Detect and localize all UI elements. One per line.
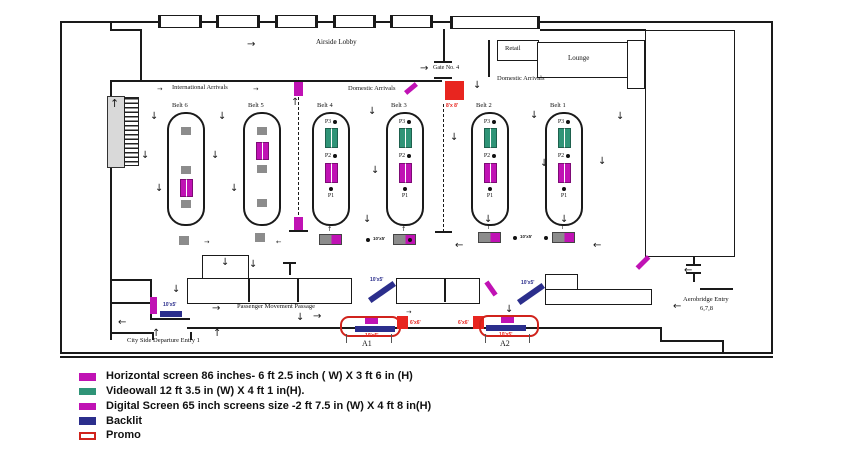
pillar-screen-pair	[319, 234, 342, 245]
gate-label: Gate No. 4	[433, 65, 459, 71]
lobby-door	[390, 15, 433, 28]
arrow-right-icon	[247, 40, 255, 50]
belt-marker	[181, 166, 191, 174]
divider-end-bar	[435, 231, 452, 233]
belt-5-label: Belt 5	[248, 103, 264, 110]
arrow-down-icon	[249, 260, 257, 270]
divider-end-bar	[289, 230, 308, 232]
arrow-down-icon	[371, 166, 379, 176]
arrow-down-icon	[230, 184, 238, 194]
wall	[540, 29, 646, 31]
vertical-screen	[150, 297, 157, 314]
wall	[110, 279, 152, 281]
pillar-dot	[513, 236, 517, 240]
wall	[488, 40, 490, 77]
belt-2-label: Belt 2	[476, 103, 492, 110]
pillar-label: P3	[325, 119, 331, 125]
size-label-10x5: 10'x5'	[521, 280, 535, 286]
pillar-dot	[407, 154, 411, 158]
arrow-down-icon	[450, 133, 458, 143]
size-label-6x6: 6'x6'	[458, 320, 469, 326]
wall	[660, 340, 724, 342]
arrow-right-icon	[204, 239, 209, 246]
pillar-dot	[366, 238, 370, 242]
passage-box	[545, 289, 652, 305]
arrow-down-icon	[211, 151, 219, 161]
lobby-door	[216, 15, 260, 28]
vertical-screen	[294, 217, 303, 231]
pillar-screen-pair	[552, 232, 575, 243]
legend-label: Videowall 12 ft 3.5 in (W) X 4 ft 1 in(H…	[106, 386, 304, 397]
legend-label: Backlit	[106, 416, 142, 427]
domestic-arrivals-label: Domestic Arrivals	[497, 76, 544, 83]
arrow-down-icon	[560, 215, 568, 225]
arrow-right-icon	[253, 86, 258, 93]
pillar-label: P1	[402, 193, 408, 199]
lounge-label: Lounge	[568, 55, 589, 62]
wall	[660, 327, 662, 341]
wall	[110, 302, 151, 304]
airside-lobby-label: Airside Lobby	[316, 39, 357, 46]
arrow-right-icon	[406, 309, 411, 316]
arrow-down-icon	[218, 112, 226, 122]
arrow-up-icon	[110, 98, 119, 109]
belt-1: P3 P2 P1	[545, 112, 583, 226]
arrow-up-icon	[291, 98, 299, 108]
legend-swatch-videowall	[79, 388, 96, 396]
pillar-label: P3	[399, 119, 405, 125]
size-label-10x5: 10'x5'	[370, 277, 384, 283]
divider	[297, 278, 299, 302]
pillar-dot	[566, 120, 570, 124]
legend: Horizontal screen 86 inches- 6 ft 2.5 in…	[79, 371, 431, 442]
dimension-tick	[346, 334, 347, 343]
belt-2: P3 P2 P1	[471, 112, 509, 226]
pillar-screen-pair	[478, 232, 501, 243]
aerobridge-label-2: 6,7,8	[700, 306, 713, 313]
door-bar	[283, 262, 296, 264]
international-arrivals-label: International Arrivals	[172, 85, 228, 92]
retail-label: Retail	[505, 46, 521, 53]
horizontal-screen	[325, 163, 338, 183]
dimension-tick	[529, 334, 530, 343]
arrow-down-icon	[540, 159, 548, 169]
videowall	[484, 128, 497, 148]
belt-3: P3 P2 P1	[386, 112, 424, 226]
gate-bar	[434, 77, 452, 79]
city-entry-label: City Side Departure Entry 1	[127, 338, 200, 345]
horizontal-screen	[180, 179, 193, 197]
videowall	[558, 128, 571, 148]
belt-6	[167, 112, 205, 226]
arrow-down-icon	[150, 112, 158, 122]
arrow-down-icon	[368, 107, 376, 117]
horizontal-screen	[399, 163, 412, 183]
pillar-label: P2	[558, 153, 564, 159]
horizontal-screen	[484, 163, 497, 183]
right-hall	[645, 30, 735, 257]
arrow-down-icon	[155, 184, 163, 194]
size-label-8x8: 8'x 8'	[446, 103, 458, 109]
legend-item-digital-screen: Digital Screen 65 inch screens size -2 f…	[79, 401, 431, 413]
pillar-dot	[333, 154, 337, 158]
arrow-up-icon	[401, 226, 406, 233]
pillar-dot	[408, 238, 412, 242]
wall	[700, 288, 733, 290]
belt-marker	[181, 200, 191, 208]
arrow-down-icon	[221, 258, 229, 268]
arrow-left-icon	[673, 302, 681, 312]
arrow-down-icon	[296, 313, 304, 323]
videowall	[325, 128, 338, 148]
arrivals-hall-wall	[110, 80, 442, 82]
size-label-10x5: 10'x5'	[499, 332, 513, 338]
pillar-dot	[488, 187, 492, 191]
pillar-dot	[562, 187, 566, 191]
door-post	[289, 263, 291, 275]
belt-1-label: Belt 1	[550, 103, 566, 110]
backlit-panel	[160, 311, 182, 317]
backlit-panel	[486, 325, 526, 331]
pillar-dot	[544, 236, 548, 240]
legend-swatch-horizontal-screen	[79, 373, 96, 381]
arrow-left-icon	[455, 241, 463, 251]
passage-box	[396, 278, 480, 304]
belt-marker	[179, 236, 189, 245]
zone-a1-label: A1	[362, 340, 372, 348]
arrow-left-icon	[593, 241, 601, 251]
legend-swatch-backlit	[79, 417, 96, 425]
corridor-wall	[187, 327, 662, 329]
arrow-down-icon	[484, 215, 492, 225]
arrow-right-icon	[157, 86, 162, 93]
outer-bottom-second-line	[60, 356, 773, 358]
pillar-dot	[407, 120, 411, 124]
horizontal-screen	[501, 317, 514, 323]
belt-4-label: Belt 4	[317, 103, 333, 110]
wall	[140, 29, 142, 82]
pillar-dot	[333, 120, 337, 124]
size-label-10x5: 10'x5'	[373, 236, 385, 241]
pillar-dot	[329, 187, 333, 191]
belt-3-label: Belt 3	[391, 103, 407, 110]
pillar-dot	[403, 187, 407, 191]
escalator-steps	[124, 97, 139, 166]
legend-label: Digital Screen 65 inch screens size -2 f…	[106, 401, 431, 412]
belt-marker	[257, 127, 267, 135]
horizontal-screen	[365, 318, 378, 324]
zone-a2-label: A2	[500, 340, 510, 348]
dimension-tick	[485, 334, 486, 343]
vertical-screen	[294, 82, 303, 96]
gate-promo-site	[445, 81, 464, 100]
lobby-door	[275, 15, 318, 28]
legend-item-promo: Promo	[79, 430, 431, 442]
aerobridge-label: Aerobridge Entry	[683, 297, 729, 304]
horizontal-screen	[256, 142, 269, 160]
arrow-up-icon	[152, 329, 160, 339]
wall	[110, 29, 142, 31]
pillar-label: P2	[399, 153, 405, 159]
pillar-label: P2	[325, 153, 331, 159]
videowall	[399, 128, 412, 148]
lobby-door	[158, 15, 202, 28]
domestic-arrivals-label: Domestic Arrivals	[348, 86, 395, 93]
legend-swatch-promo	[79, 432, 96, 440]
wall	[150, 318, 190, 320]
arrow-down-icon	[363, 215, 371, 225]
entry-wall	[110, 332, 153, 334]
arrow-right-icon	[212, 304, 220, 314]
arrow-down-icon	[598, 157, 606, 167]
zone-divider-dashed	[298, 97, 299, 230]
pillar-label: P3	[484, 119, 490, 125]
size-label-10x5: 10'x5'	[520, 234, 532, 239]
divider	[444, 278, 446, 302]
service-room	[627, 40, 645, 89]
pillar-label: P1	[487, 193, 493, 199]
arrow-down-icon	[172, 285, 180, 295]
arrow-right-icon	[420, 64, 428, 74]
arrow-down-icon	[141, 151, 149, 161]
horizontal-screen	[558, 163, 571, 183]
arrow-down-icon	[473, 81, 481, 91]
arrow-down-icon	[530, 111, 538, 121]
legend-item-horizontal-screen: Horizontal screen 86 inches- 6 ft 2.5 in…	[79, 371, 431, 383]
legend-label: Promo	[106, 430, 141, 441]
legend-item-backlit: Backlit	[79, 415, 431, 427]
gate-wall	[443, 29, 445, 61]
zone-divider-dashed	[443, 104, 444, 232]
pillar-dot	[492, 120, 496, 124]
arrow-up-icon	[213, 329, 221, 339]
lobby-door	[333, 15, 376, 28]
belt-marker	[255, 233, 265, 242]
wall	[722, 340, 724, 352]
size-label-10x5: 10'x5'	[163, 302, 177, 308]
divider	[248, 278, 250, 302]
passage-box	[187, 278, 352, 304]
passage-label: Passenger Movement Passage	[237, 304, 315, 311]
pillar-label: P2	[484, 153, 490, 159]
terminal-floor-plan: 8'x 8' Retail Lounge Airside Lobby Inter…	[0, 0, 845, 470]
arrow-left-icon	[276, 239, 281, 246]
backlit-panel	[355, 326, 395, 332]
size-label-6x6: 6'x6'	[410, 320, 421, 326]
pillar-label: P1	[561, 193, 567, 199]
arrow-down-icon	[616, 112, 624, 122]
belt-marker	[257, 199, 267, 207]
belt-4: P3 P2 P1	[312, 112, 350, 226]
gate-bar	[434, 61, 452, 63]
lobby-door-wide	[450, 16, 540, 29]
belt-6-label: Belt 6	[172, 103, 188, 110]
belt-5	[243, 112, 281, 226]
legend-item-videowall: Videowall 12 ft 3.5 in (W) X 4 ft 1 in(H…	[79, 386, 431, 398]
arrow-left-icon	[684, 266, 692, 276]
arrow-up-icon	[327, 226, 332, 233]
pillar-dot	[492, 154, 496, 158]
arrow-right-icon	[313, 312, 321, 322]
belt-marker	[257, 165, 267, 173]
arrow-down-icon	[505, 305, 513, 315]
pillar-screen-pair	[393, 234, 416, 245]
arrow-left-icon	[118, 318, 126, 328]
door-post	[693, 273, 695, 282]
promo-site	[397, 316, 408, 329]
pillar-label: P1	[328, 193, 334, 199]
pillar-dot	[566, 154, 570, 158]
belt-marker	[181, 127, 191, 135]
dimension-tick	[391, 334, 392, 343]
pillar-label: P3	[558, 119, 564, 125]
legend-swatch-digital-screen	[79, 403, 96, 411]
legend-label: Horizontal screen 86 inches- 6 ft 2.5 in…	[106, 371, 413, 382]
